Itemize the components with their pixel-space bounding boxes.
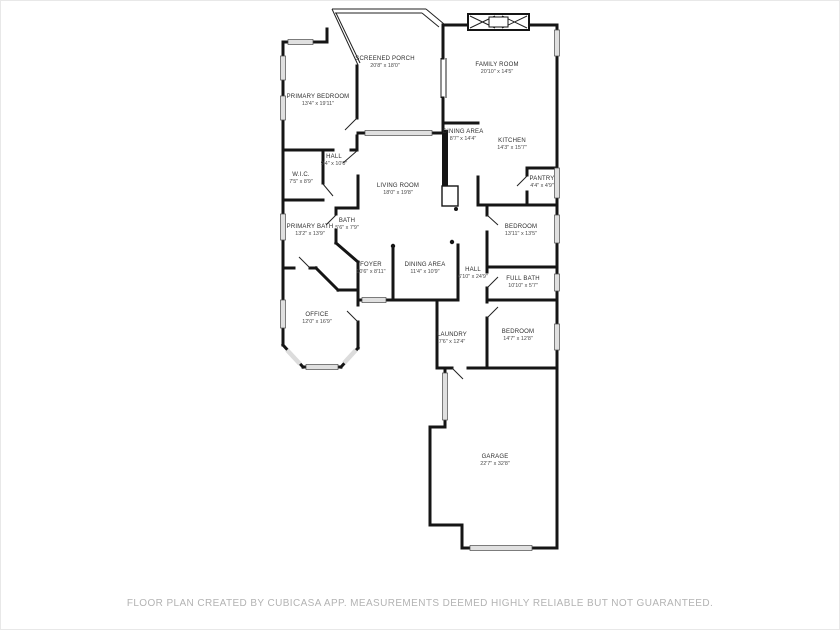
window-office-bay-right <box>344 350 356 363</box>
svg-text:HALL: HALL <box>465 267 481 273</box>
svg-text:13'2" x 13'9": 13'2" x 13'9" <box>295 231 325 237</box>
svg-text:20'8" x 18'0": 20'8" x 18'0" <box>370 63 400 69</box>
room-label-kitchen: KITCHEN 14'3" x 15'7" <box>497 138 527 151</box>
column-dots <box>391 207 458 248</box>
room-label-pantry: PANTRY 4'4" x 4'9" <box>530 176 555 189</box>
svg-text:BATH: BATH <box>339 218 355 224</box>
window-primary-bedroom-top <box>288 40 313 45</box>
svg-text:12'0" x 16'9": 12'0" x 16'9" <box>302 319 332 325</box>
floor-plan-page: SCREENED PORCH 20'8" x 18'0" FAMILY ROOM… <box>0 0 840 630</box>
porch-screen-walls <box>332 9 446 98</box>
svg-text:13'4" x 19'11": 13'4" x 19'11" <box>302 101 334 107</box>
room-label-living-room: LIVING ROOM 18'0" x 19'8" <box>377 183 419 196</box>
room-label-dining-area-upper: DINING AREA 8'7" x 14'4" <box>443 129 484 142</box>
garage-door <box>470 546 532 551</box>
window-office-west <box>281 300 286 328</box>
room-label-family-room: FAMILY ROOM 20'10" x 14'5" <box>475 62 518 75</box>
living-room-slider <box>365 131 432 136</box>
window-garage-west <box>443 373 448 420</box>
svg-text:7'5" x 8'9": 7'5" x 8'9" <box>289 179 313 185</box>
footer-disclaimer: FLOOR PLAN CREATED BY CUBICASA APP. MEAS… <box>0 598 840 609</box>
svg-text:4'4" x 4'9": 4'4" x 4'9" <box>530 183 554 189</box>
svg-text:BEDROOM: BEDROOM <box>505 224 537 230</box>
svg-text:LIVING ROOM: LIVING ROOM <box>377 183 419 189</box>
svg-text:W.I.C.: W.I.C. <box>292 172 310 178</box>
svg-text:9'4" x 10'0": 9'4" x 10'0" <box>321 161 348 167</box>
svg-text:FOYER: FOYER <box>360 262 382 268</box>
svg-text:HALL: HALL <box>326 154 342 160</box>
room-label-full-bath: FULL BATH 10'10" x 5'7" <box>506 276 539 289</box>
svg-text:10'10" x 5'7": 10'10" x 5'7" <box>508 283 538 289</box>
window-kitchen-east <box>555 168 560 198</box>
room-label-foyer: FOYER 10'6" x 8'11" <box>356 262 385 275</box>
front-entry-door <box>362 298 386 303</box>
svg-text:BEDROOM: BEDROOM <box>502 329 534 335</box>
svg-text:GARAGE: GARAGE <box>482 454 509 460</box>
svg-text:5'6" x 7'9": 5'6" x 7'9" <box>335 225 359 231</box>
room-label-bedroom-2: BEDROOM 14'7" x 12'8" <box>502 329 534 342</box>
floor-plan: SCREENED PORCH 20'8" x 18'0" FAMILY ROOM… <box>0 0 840 630</box>
room-label-primary-bath: PRIMARY BATH 13'2" x 13'9" <box>287 224 334 237</box>
window-office-bay-bottom <box>306 365 338 370</box>
room-label-primary-bedroom: PRIMARY BEDROOM 13'4" x 19'11" <box>287 94 350 107</box>
svg-text:SCREENED PORCH: SCREENED PORCH <box>355 56 414 62</box>
svg-text:FULL BATH: FULL BATH <box>506 276 539 282</box>
svg-text:LAUNDRY: LAUNDRY <box>437 332 467 338</box>
svg-text:DINING AREA: DINING AREA <box>405 262 446 268</box>
svg-text:PRIMARY BATH: PRIMARY BATH <box>287 224 334 230</box>
room-label-hall-upper: HALL 9'4" x 10'0" <box>321 154 348 167</box>
svg-text:PANTRY: PANTRY <box>530 176 555 182</box>
window-bedroom1-east <box>555 215 560 243</box>
svg-text:14'3" x 15'7": 14'3" x 15'7" <box>497 145 527 151</box>
svg-text:8'7" x 14'4": 8'7" x 14'4" <box>450 136 477 142</box>
room-label-hall-lower: HALL 6'10" x 24'9" <box>458 267 488 280</box>
svg-text:OFFICE: OFFICE <box>305 312 328 318</box>
svg-text:KITCHEN: KITCHEN <box>498 138 526 144</box>
room-label-office: OFFICE 12'0" x 16'9" <box>302 312 332 325</box>
room-labels: SCREENED PORCH 20'8" x 18'0" FAMILY ROOM… <box>287 56 555 467</box>
window-primary-bedroom-west-1 <box>281 56 286 80</box>
svg-text:18'0" x 19'8": 18'0" x 19'8" <box>383 190 413 196</box>
room-label-bath: BATH 5'6" x 7'9" <box>335 218 359 231</box>
svg-text:13'11" x 13'5": 13'11" x 13'5" <box>505 231 537 237</box>
room-label-screened-porch: SCREENED PORCH 20'8" x 18'0" <box>355 56 414 69</box>
room-label-wic: W.I.C. 7'5" x 8'9" <box>289 172 313 185</box>
fireplace-icon <box>468 14 529 30</box>
window-family-room-east <box>555 30 560 56</box>
window-primary-bedroom-west-2 <box>281 96 286 120</box>
room-label-dining-area: DINING AREA 11'4" x 10'9" <box>405 262 446 275</box>
window-office-bay-left <box>287 350 300 364</box>
svg-text:20'10" x 14'5": 20'10" x 14'5" <box>481 69 514 75</box>
window-bedroom2-east <box>555 324 560 350</box>
svg-text:7'6" x 12'4": 7'6" x 12'4" <box>439 339 466 345</box>
svg-text:DINING AREA: DINING AREA <box>443 129 484 135</box>
svg-text:22'7" x 32'8": 22'7" x 32'8" <box>480 461 510 467</box>
svg-text:FAMILY ROOM: FAMILY ROOM <box>475 62 518 68</box>
svg-text:6'10" x 24'9": 6'10" x 24'9" <box>458 274 488 280</box>
room-label-garage: GARAGE 22'7" x 32'8" <box>480 454 510 467</box>
svg-text:10'6" x 8'11": 10'6" x 8'11" <box>356 269 385 275</box>
window-primary-bath-west <box>281 214 286 240</box>
windows <box>281 30 560 551</box>
window-full-bath-east <box>555 274 560 291</box>
room-label-bedroom-1: BEDROOM 13'11" x 13'5" <box>505 224 537 237</box>
svg-text:PRIMARY BEDROOM: PRIMARY BEDROOM <box>287 94 350 100</box>
room-label-laundry: LAUNDRY 7'6" x 12'4" <box>437 332 467 345</box>
svg-text:11'4" x 10'9": 11'4" x 10'9" <box>410 269 439 275</box>
kitchen-island <box>442 186 458 206</box>
svg-text:14'7" x 12'8": 14'7" x 12'8" <box>503 336 533 342</box>
